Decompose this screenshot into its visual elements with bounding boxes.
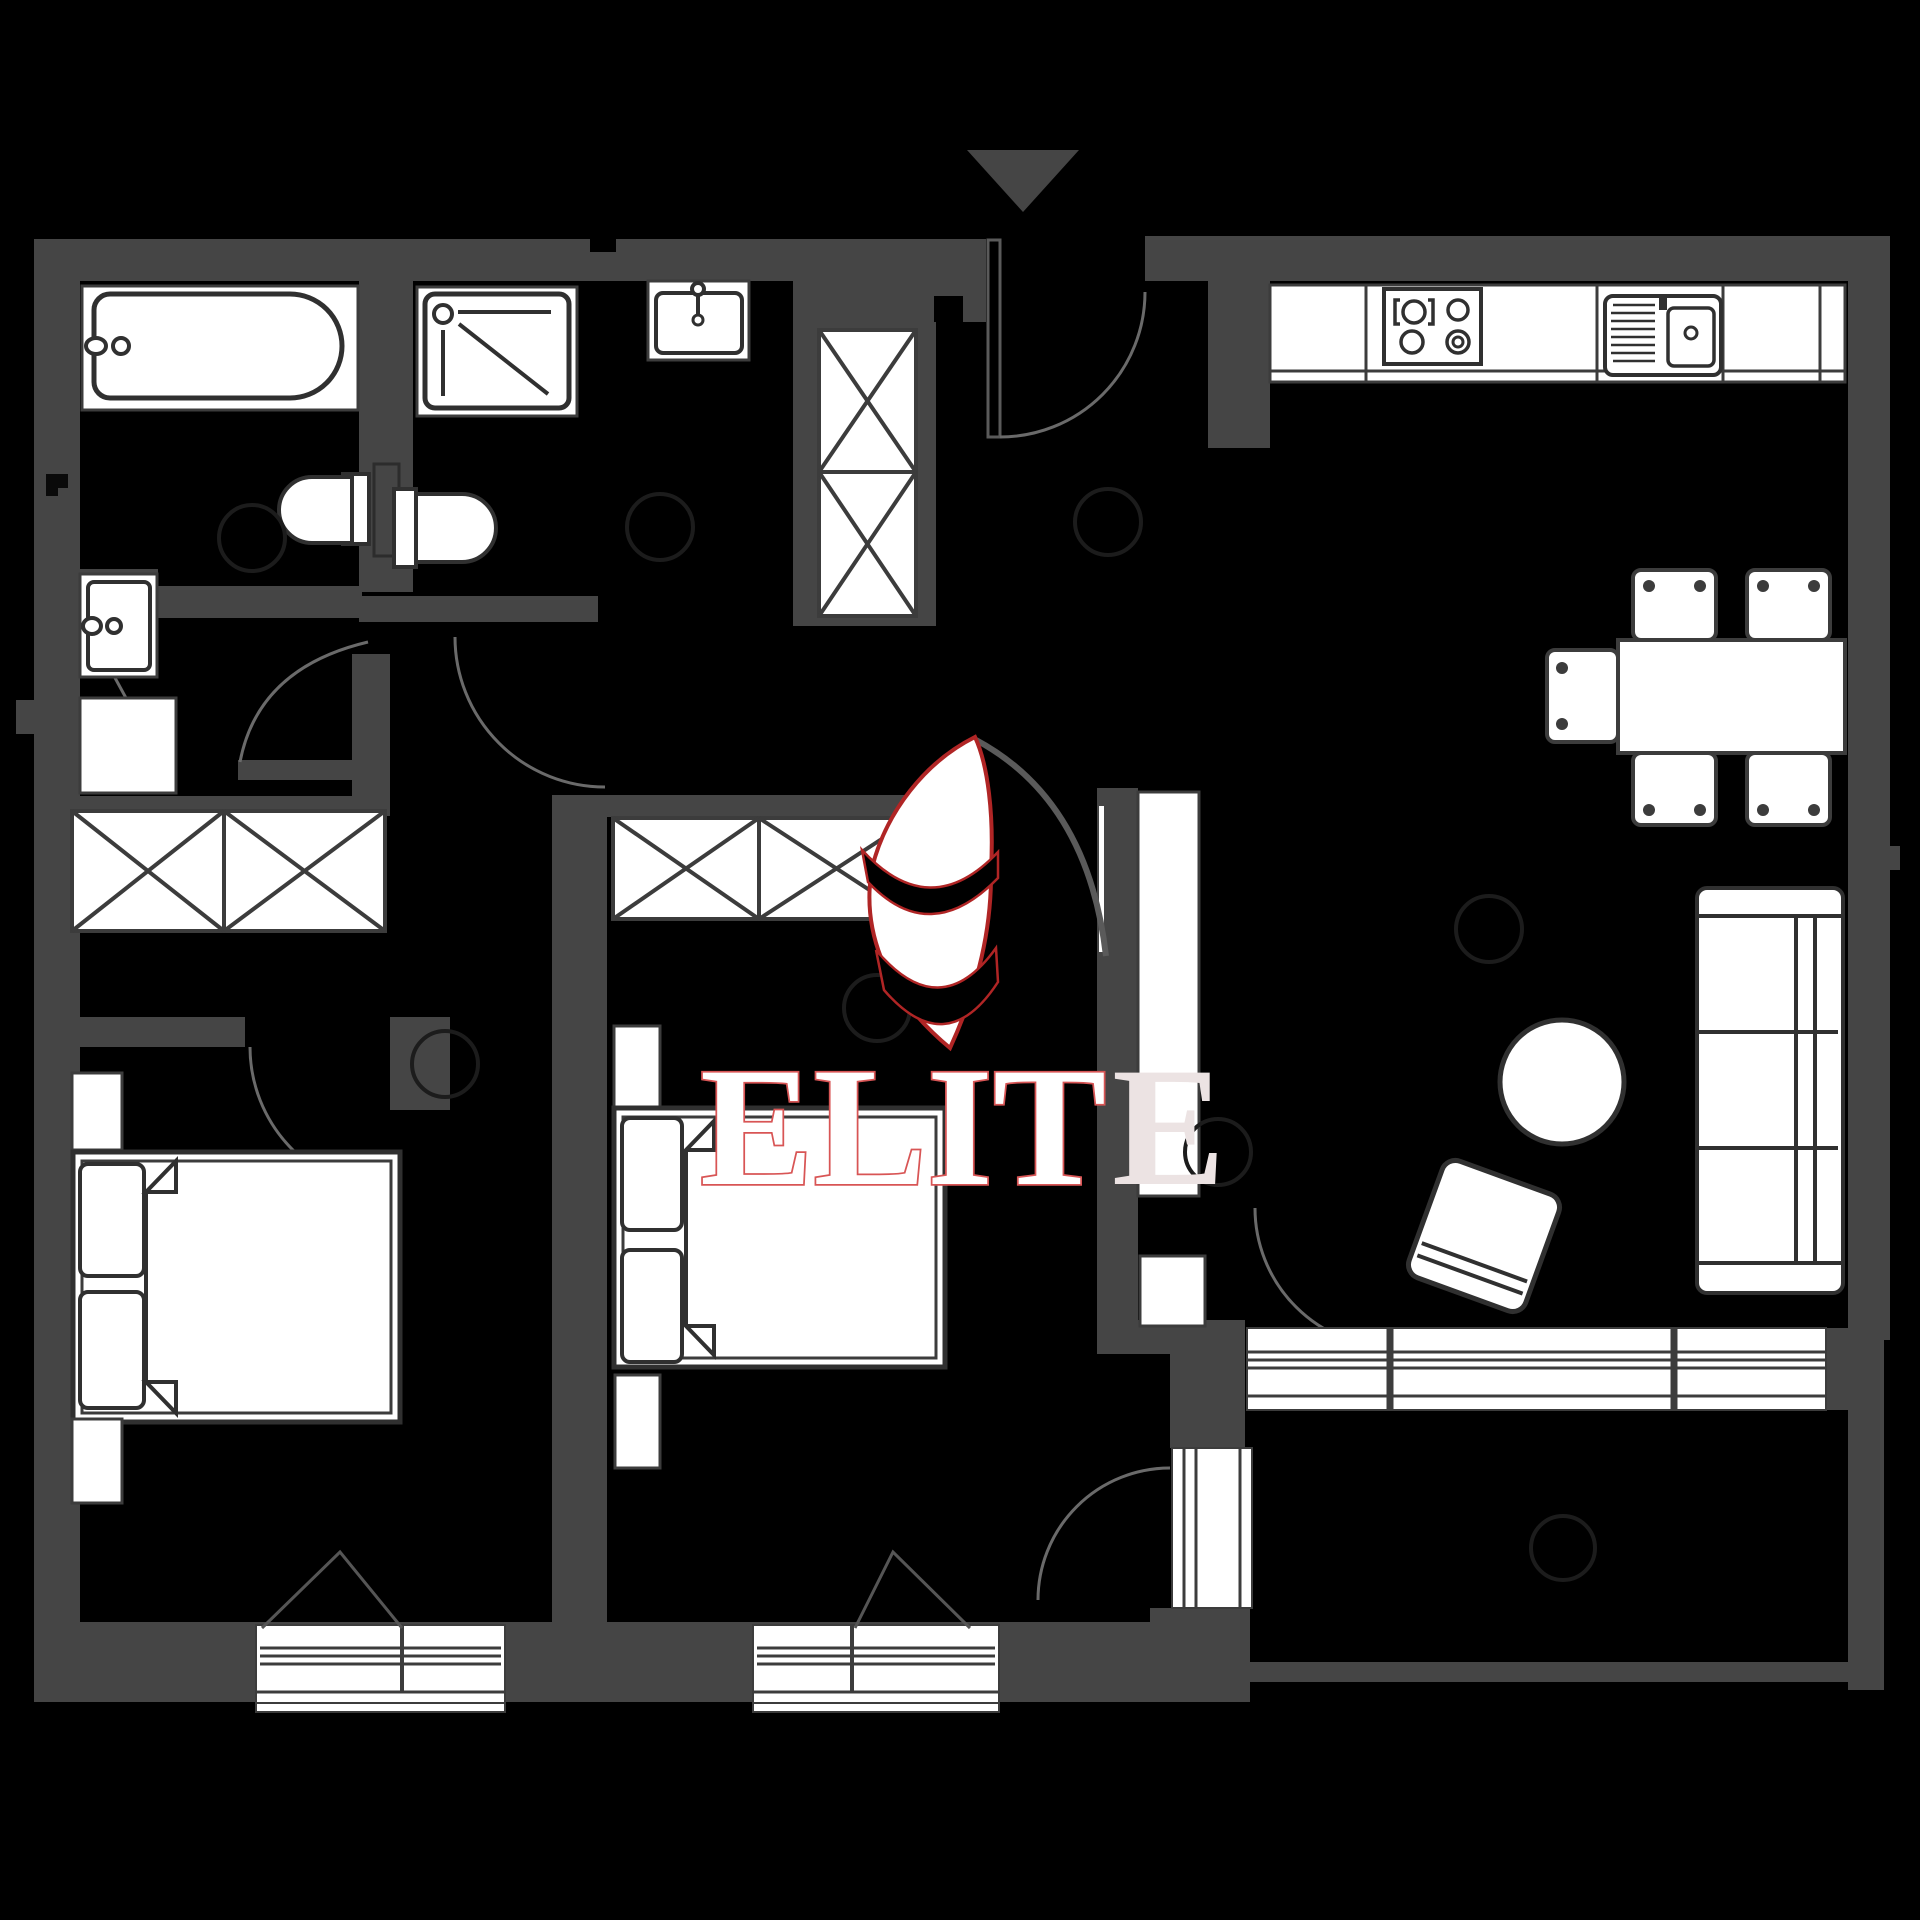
svg-text:ELIT: ELIT (700, 1033, 1106, 1221)
svg-text:E: E (1112, 1033, 1225, 1221)
